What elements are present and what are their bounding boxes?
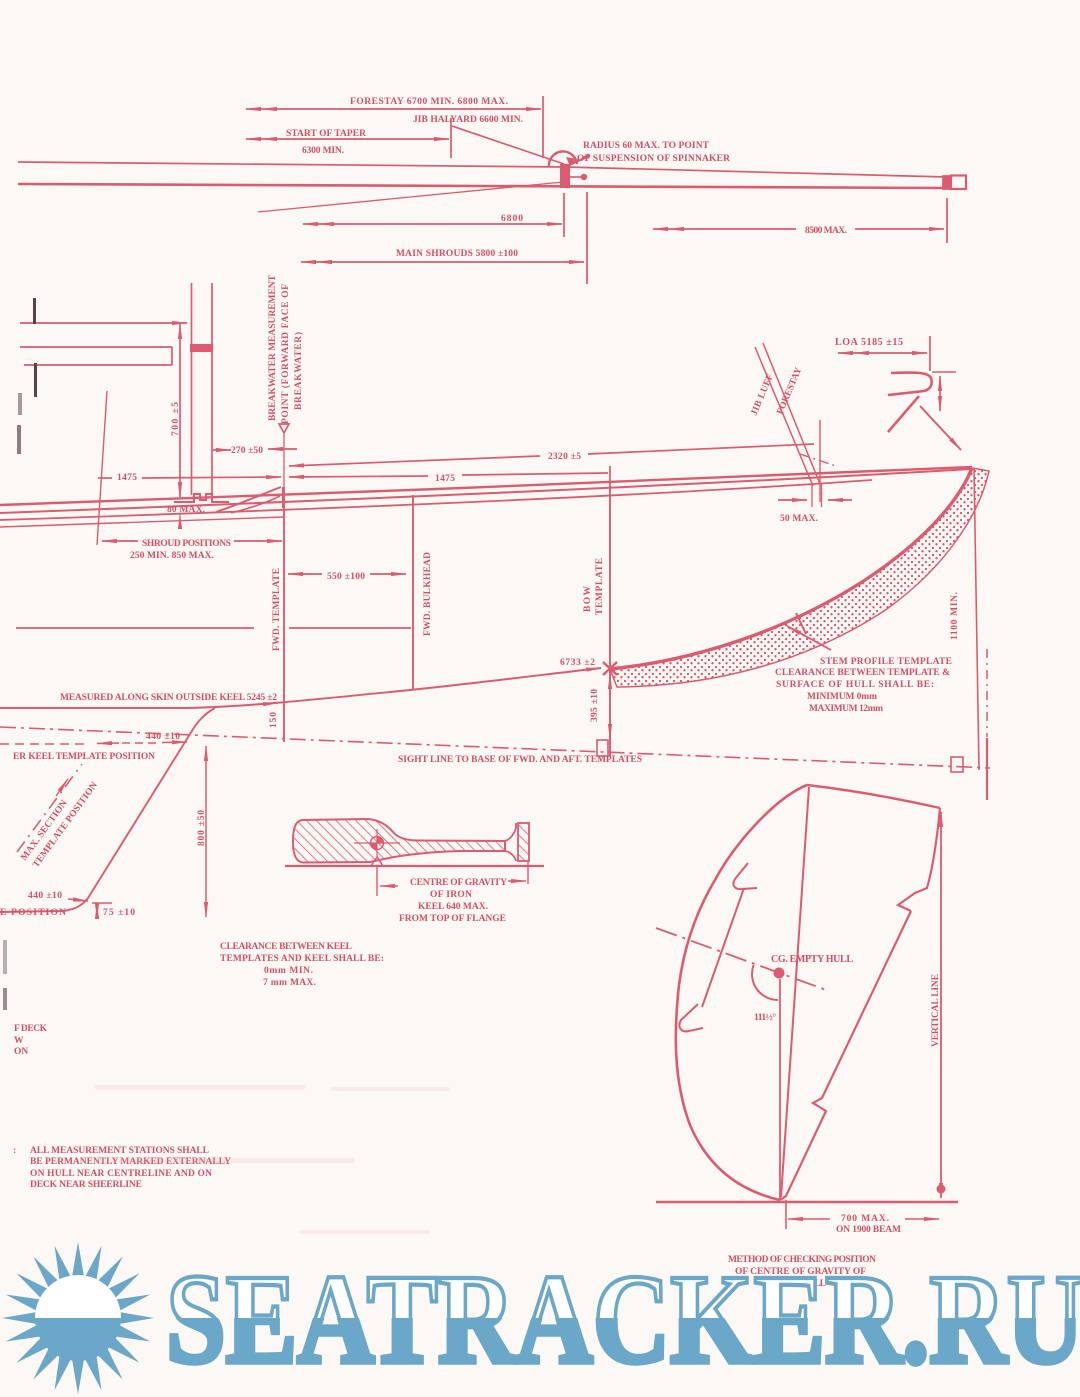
svg-text:CLEARANCE BETWEEN KEEL: CLEARANCE BETWEEN KEEL (220, 942, 352, 952)
svg-text:FROM TOP OF FLANGE: FROM TOP OF FLANGE (399, 914, 506, 924)
svg-text:LOA 5185 ±15: LOA 5185 ±15 (835, 337, 903, 348)
svg-text:FORESTAY 6700 MIN. 6800 MAX.: FORESTAY 6700 MIN. 6800 MAX. (350, 97, 508, 107)
svg-text:BREAKWATER MEASUREMENT: BREAKWATER MEASUREMENT (268, 274, 278, 421)
svg-text:7 mm MAX.: 7 mm MAX. (263, 978, 316, 988)
svg-text:SURFACE OF HULL SHALL BE:: SURFACE OF HULL SHALL BE: (776, 680, 934, 690)
svg-text:DECK NEAR SHEERLINE: DECK NEAR SHEERLINE (30, 1180, 142, 1190)
svg-text:RADIUS 60 MAX. TO POINT: RADIUS 60 MAX. TO POINT (583, 141, 710, 151)
svg-text:BREAKWATER): BREAKWATER) (293, 332, 304, 410)
svg-text:1475: 1475 (435, 474, 455, 484)
svg-text:KEEL 640 MAX.: KEEL 640 MAX. (418, 902, 488, 912)
svg-text:MAIN SHROUDS 5800 ±100: MAIN SHROUDS 5800 ±100 (396, 249, 518, 259)
svg-text:POINT (FORWARD FACE OF: POINT (FORWARD FACE OF (280, 284, 291, 424)
svg-text:ALL MEASUREMENT STATIONS SHALL: ALL MEASUREMENT STATIONS SHALL (30, 1146, 209, 1156)
svg-text:ON 1900 BEAM: ON 1900 BEAM (836, 1225, 901, 1235)
svg-text:W: W (14, 1036, 24, 1046)
svg-text:BOW: BOW (583, 586, 593, 613)
svg-text:6300 MIN.: 6300 MIN. (302, 146, 344, 156)
svg-text:440 ±10: 440 ±10 (28, 891, 62, 901)
svg-text:CLEARANCE BETWEEN TEMPLATE &: CLEARANCE BETWEEN TEMPLATE & (775, 668, 950, 678)
svg-text:MEASURED ALONG SKIN OUTSIDE KE: MEASURED ALONG SKIN OUTSIDE KEEL 5245 ±2 (60, 693, 277, 703)
svg-text:2320 ±5: 2320 ±5 (548, 452, 581, 462)
svg-text:111½°: 111½° (754, 1012, 776, 1023)
svg-text:1475: 1475 (117, 473, 137, 483)
svg-text:FWD. BULKHEAD: FWD. BULKHEAD (423, 552, 433, 636)
svg-text:VERTICAL LINE: VERTICAL LINE (931, 974, 941, 1047)
svg-text:MAXIMUM 12mm: MAXIMUM 12mm (809, 704, 883, 714)
svg-text:ER KEEL TEMPLATE POSITION: ER KEEL TEMPLATE POSITION (13, 752, 155, 762)
svg-text::: : (13, 1146, 16, 1156)
svg-text:80 MAX.: 80 MAX. (167, 505, 205, 515)
svg-text:550 ±100: 550 ±100 (327, 572, 365, 582)
svg-text:440 ±10: 440 ±10 (146, 732, 180, 742)
svg-text:700 MAX.: 700 MAX. (841, 1214, 889, 1224)
svg-text:FWD. TEMPLATE: FWD. TEMPLATE (272, 568, 282, 651)
svg-text:SHROUD POSITIONS: SHROUD POSITIONS (142, 539, 231, 549)
svg-text:8500 MAX.: 8500 MAX. (805, 226, 847, 236)
svg-text:395 ±10: 395 ±10 (590, 689, 600, 722)
svg-text:ON: ON (14, 1047, 28, 1057)
svg-text:F DECK: F DECK (14, 1024, 48, 1034)
svg-text:270 ±50: 270 ±50 (231, 446, 263, 456)
svg-text:START OF TAPER: START OF TAPER (286, 129, 366, 139)
svg-text:OF IRON: OF IRON (430, 890, 472, 900)
svg-text:150: 150 (269, 712, 279, 728)
svg-text:SIGHT LINE TO BASE OF FWD. AND: SIGHT LINE TO BASE OF FWD. AND AFT. TEMP… (398, 755, 642, 765)
svg-text:CENTRE OF GRAVITY: CENTRE OF GRAVITY (410, 878, 507, 888)
svg-text:250 MIN. 850 MAX.: 250 MIN. 850 MAX. (130, 551, 214, 561)
svg-text:STEM PROFILE TEMPLATE: STEM PROFILE TEMPLATE (820, 657, 952, 667)
svg-text:TEMPLATES AND KEEL SHALL BE:: TEMPLATES AND KEEL SHALL BE: (220, 954, 384, 964)
svg-text:800 ±50: 800 ±50 (197, 810, 207, 846)
svg-text:CG. EMPTY HULL: CG. EMPTY HULL (771, 954, 853, 965)
svg-text:E POSITION: E POSITION (0, 908, 66, 918)
svg-text:6800: 6800 (501, 214, 523, 224)
svg-text:TEMPLATE: TEMPLATE (595, 558, 605, 615)
svg-text:ON HULL NEAR CENTRELINE AND ON: ON HULL NEAR CENTRELINE AND ON (30, 1169, 212, 1179)
svg-text:MINIMUM 0mm: MINIMUM 0mm (807, 692, 877, 702)
svg-text:0mm MIN.: 0mm MIN. (264, 966, 313, 976)
svg-text:1100 MIN.: 1100 MIN. (950, 592, 960, 640)
svg-text:OF SUSPENSION OF SPINNAKER: OF SUSPENSION OF SPINNAKER (577, 154, 730, 164)
svg-text:50 MAX.: 50 MAX. (780, 514, 818, 524)
svg-text:6733 ±2: 6733 ±2 (560, 658, 595, 668)
svg-text:JIB HALYARD 6600 MIN.: JIB HALYARD 6600 MIN. (413, 115, 523, 125)
